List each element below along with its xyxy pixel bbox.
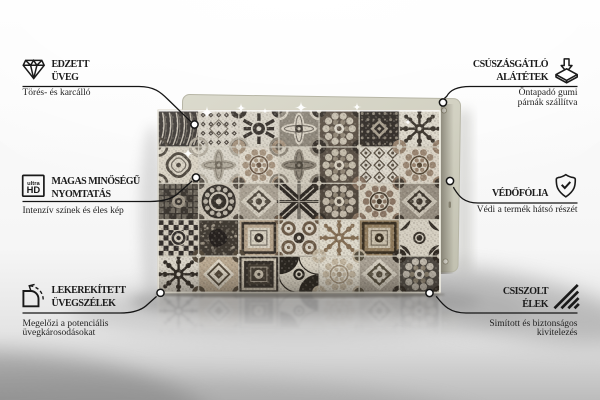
svg-text:HD: HD (27, 184, 41, 195)
